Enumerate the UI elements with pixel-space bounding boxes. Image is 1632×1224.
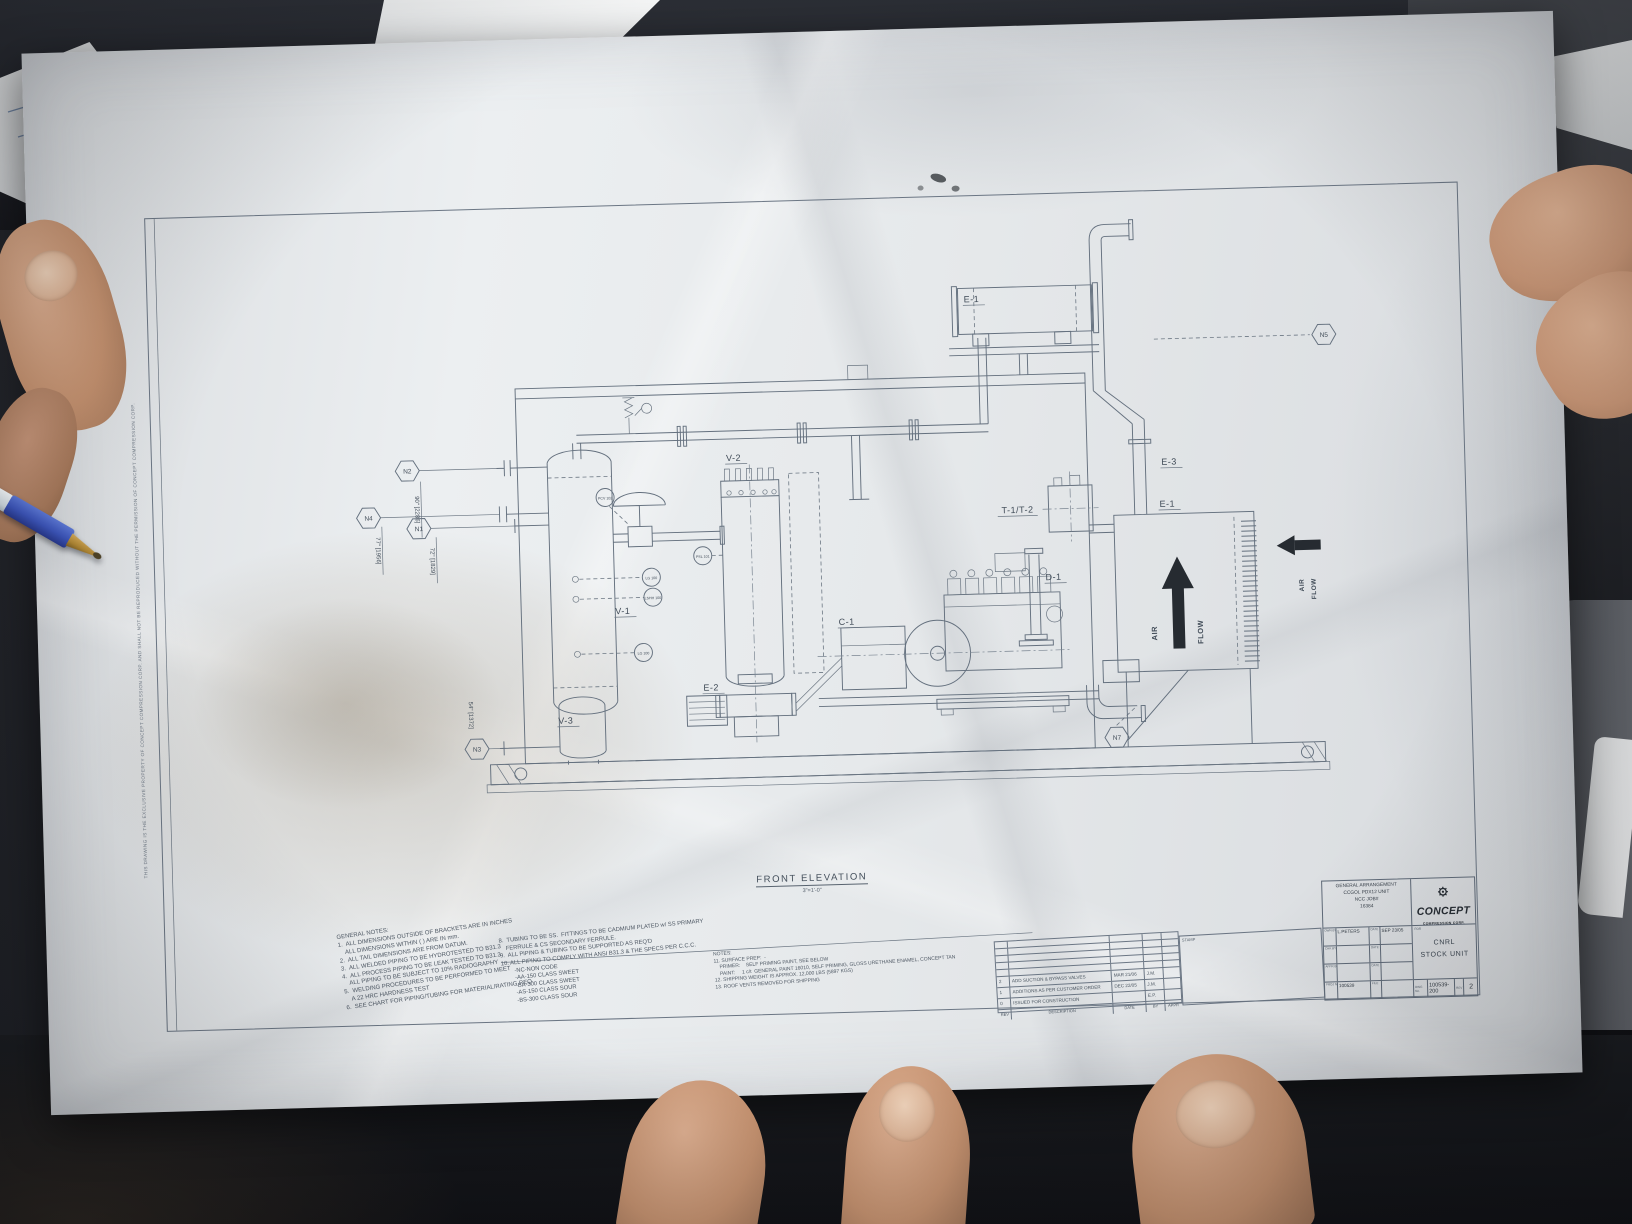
top-piping xyxy=(571,388,990,508)
drawing-sheet: THIS DRAWING IS THE EXCLUSIVE PROPERTY O… xyxy=(21,11,1582,1115)
dimension-90in: 90" [2286] xyxy=(413,496,420,524)
airflow-up-flow: FLOW xyxy=(1196,619,1206,644)
thumbnail xyxy=(15,241,86,310)
cooler-e1: AIR FLOW AIR FLOW xyxy=(1082,510,1326,749)
dimension-77in: 77" [1956] xyxy=(374,537,381,565)
building-outline xyxy=(515,359,1096,764)
signature-row: PROJ No.100539 FILE xyxy=(1325,980,1413,999)
instrument-pcv102: PCV 102 xyxy=(598,496,612,500)
centerline-v2 xyxy=(749,464,757,742)
tag-e2: E-2 xyxy=(703,682,719,692)
fingernail xyxy=(877,1080,937,1144)
dimension-texts: 90" [2286] 77" [1956] 72" [1829] 54" [13… xyxy=(373,480,474,731)
drawing-number: 100539-200 xyxy=(1428,979,1455,997)
tag-v3: V-3 xyxy=(558,715,573,725)
view-title: FRONT ELEVATION xyxy=(756,871,867,887)
nozzle-tags: N2 N4 N1 N3 N5 N7 xyxy=(352,324,1347,768)
gear-icon xyxy=(1437,884,1448,902)
tag-v2: V-2 xyxy=(726,453,741,463)
instrument-lg100: LG 100 xyxy=(645,576,657,580)
tag-c1: C-1 xyxy=(839,617,855,627)
dimension-54in: 54" [1372] xyxy=(467,702,474,730)
tag-e1-top: E-1 xyxy=(964,294,980,304)
exchanger-e2 xyxy=(687,695,728,726)
for-label: FOR xyxy=(1414,927,1421,931)
instrument-lshh100: LSHH 100 xyxy=(645,596,662,600)
project-info: GENERAL ARRANGEMENT CCGOL PDX12 UNIT NCC… xyxy=(1322,879,1412,927)
exhaust-e3-piping xyxy=(1089,219,1153,515)
dimension-72in: 72" [1829] xyxy=(428,548,435,576)
control-valve: PCV 102 xyxy=(596,485,725,548)
stamp-box: STAMP xyxy=(1179,928,1326,1006)
vessel-d1 xyxy=(1017,548,1054,646)
tag-e3: E-3 xyxy=(1161,456,1177,466)
vessel-v2-compressor xyxy=(709,466,843,737)
pen-tip xyxy=(92,551,103,561)
nozzle-tag-n2: N2 xyxy=(403,468,412,475)
photo-of-engineering-drawing: THIS DRAWING IS THE EXCLUSIVE PROPERTY O… xyxy=(0,0,1632,1224)
unit-name: STOCK UNIT xyxy=(1413,948,1476,962)
elevation-drawing: N2 N4 N1 N3 N5 N7 xyxy=(145,183,1479,1031)
thumbnail xyxy=(1172,1076,1260,1153)
tank-t1-t2 xyxy=(1042,471,1100,543)
nozzle-tag-n7: N7 xyxy=(1113,735,1122,742)
instrument-bubbles: LG 100 LSHH 100 LG 100 PSL 101 xyxy=(632,546,726,661)
airflow-right-flow: FLOW xyxy=(1311,578,1319,600)
nozzle-tag-n4: N4 xyxy=(364,515,373,522)
client-title: CNRL STOCK UNIT xyxy=(1412,924,1476,979)
airflow-up-air: AIR xyxy=(1150,626,1159,641)
company-logo: CONCEPT COMPRESSION CORP. xyxy=(1411,877,1475,925)
tag-t1-t2: T-1/T-2 xyxy=(1001,505,1033,516)
stamp-label: STAMP xyxy=(1182,937,1196,943)
nozzle-tag-n3: N3 xyxy=(473,747,482,754)
skid-base xyxy=(487,741,1330,793)
signature-rows: DWN BYL.PETERS DATESEP 23/05 CHK BY DATE… xyxy=(1323,926,1414,999)
revision-table: 2ADD SUCTION & BYPASS VALVES MAR 21/06J.… xyxy=(994,931,1183,1013)
instrument-lg100-2: LG 100 xyxy=(638,651,650,655)
drawing-number-row: DWG No. 100539-200 REV 2 xyxy=(1414,977,1477,997)
airflow-right-air: AIR xyxy=(1299,579,1306,592)
company-name: CONCEPT xyxy=(1417,904,1471,917)
project-line: 16384 xyxy=(1323,903,1411,912)
tag-d1: D-1 xyxy=(1045,572,1061,582)
nozzle-tag-n5: N5 xyxy=(1320,332,1329,339)
instrument-psl101: PSL 101 xyxy=(696,555,710,559)
drawing-border: N2 N4 N1 N3 N5 N7 xyxy=(144,182,1480,1032)
tag-e1-cooler: E-1 xyxy=(1159,499,1175,509)
vessel-v1 xyxy=(379,448,647,719)
vessel-v3 xyxy=(488,696,607,766)
title-block: GENERAL ARRANGEMENT CCGOL PDX12 UNIT NCC… xyxy=(1321,876,1478,1000)
revision-number: 2 xyxy=(1464,978,1477,995)
tag-v1: V-1 xyxy=(615,606,630,616)
